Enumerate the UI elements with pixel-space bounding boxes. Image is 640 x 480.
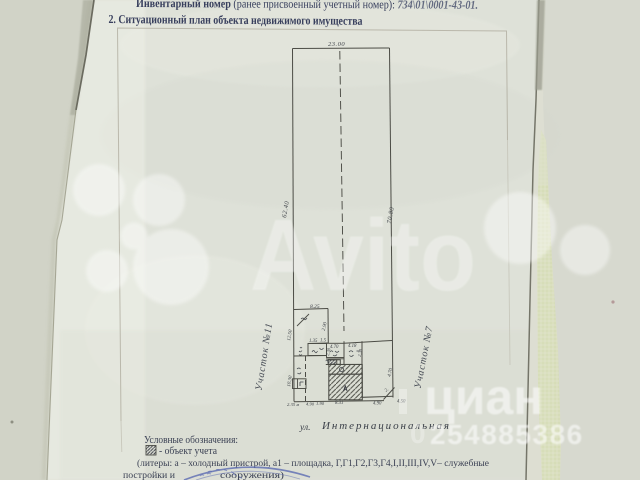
svg-text:4.90: 4.90 xyxy=(373,402,382,407)
svg-text:254885386: 254885386 xyxy=(430,419,584,450)
svg-text:(литеры: а – холодный пристро: (литеры: а – холодный пристрой, а1 – пло… xyxy=(137,458,489,469)
svg-text:4.18: 4.18 xyxy=(348,344,357,349)
svg-text:циан: циан xyxy=(424,369,543,425)
svg-text:23.00: 23.00 xyxy=(328,41,345,48)
svg-text:Условные обозначения:: Условные обозначения: xyxy=(144,435,238,446)
svg-text:Инвентарный номер (ранее присв: Инвентарный номер (ранее присвоенный уче… xyxy=(136,0,478,12)
svg-text:- объект учета: - объект учета xyxy=(159,446,218,457)
svg-text:4.70: 4.70 xyxy=(330,345,339,350)
svg-text:2.35 м: 2.35 м xyxy=(287,402,299,407)
svg-text:1.5: 1.5 xyxy=(320,339,327,344)
svg-text:2. Ситуационный план объекта н: 2. Ситуационный план объекта недвижимого… xyxy=(108,12,362,28)
svg-text:Avito: Avito xyxy=(250,200,476,312)
svg-text:8.31: 8.31 xyxy=(335,401,343,406)
svg-text:постройки и: постройки и xyxy=(123,470,175,480)
svg-text:ул.: ул. xyxy=(299,423,310,433)
svg-text:1.90: 1.90 xyxy=(316,401,325,406)
svg-text:4.90: 4.90 xyxy=(306,402,315,407)
svg-text:0: 0 xyxy=(410,418,426,449)
